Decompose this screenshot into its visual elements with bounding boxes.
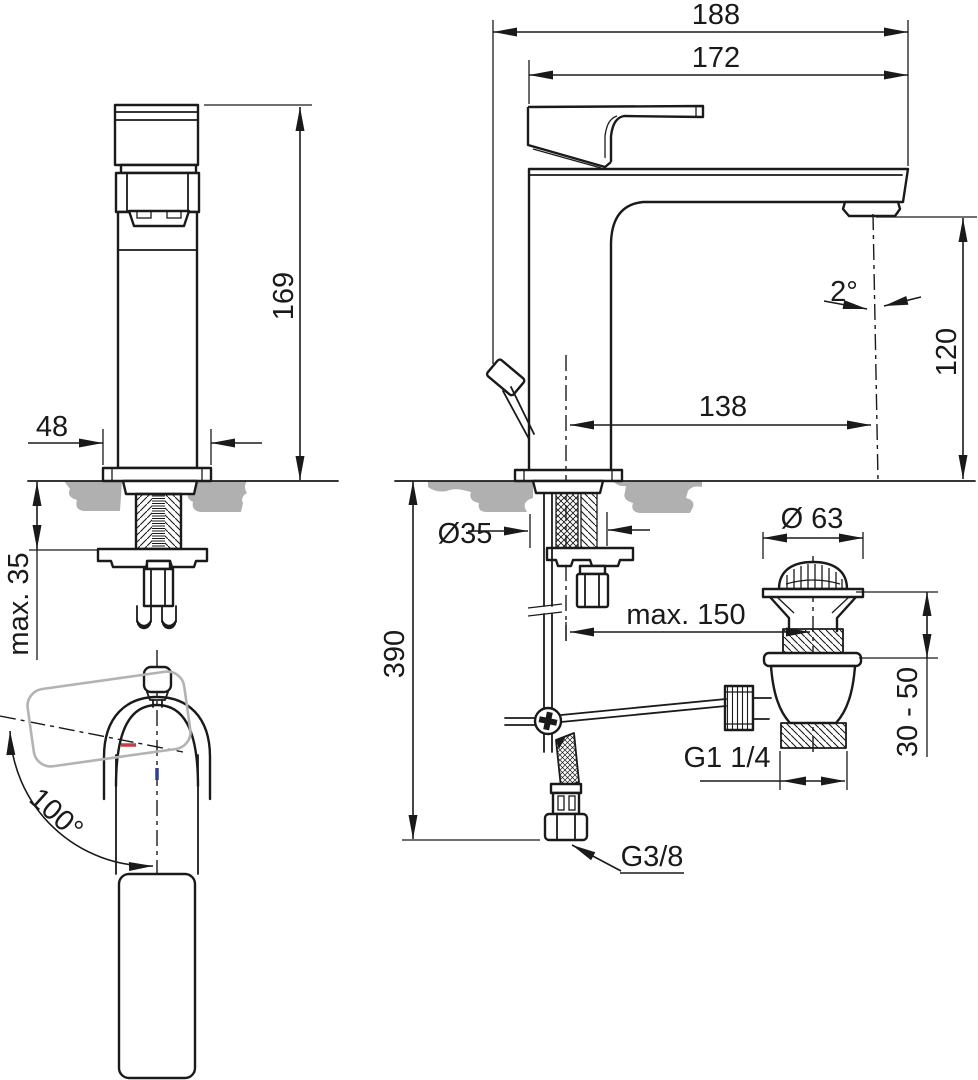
top-view: 100° xyxy=(0,650,210,1078)
waste-plug-cap xyxy=(779,562,847,589)
dim-clamp-range: 30 - 50 xyxy=(856,592,938,757)
dim-waste-thread-label: G1 1/4 xyxy=(683,742,770,774)
side-under-counter-mounting xyxy=(505,481,726,840)
dim-total-depth-label: 188 xyxy=(692,0,740,31)
hose-nut xyxy=(545,814,587,840)
dim-supply-thread-label: G3/8 xyxy=(621,841,684,873)
dim-plug-diameter: Ø 63 xyxy=(763,503,863,559)
pull-rod-joint xyxy=(505,699,726,734)
dim-clamp-range-label: 30 - 50 xyxy=(892,667,924,757)
pull-rod-knob xyxy=(486,358,534,439)
technical-drawing-page: 169 48 max. 35 xyxy=(0,0,978,1080)
dim-plug-diameter-label: Ø 63 xyxy=(781,503,844,535)
mounting-bracket xyxy=(547,548,633,566)
dim-swivel-angle: 100° xyxy=(10,731,153,866)
faucet-side-outline xyxy=(486,169,908,481)
centerline-swung xyxy=(0,716,183,752)
waste-assembly xyxy=(725,556,863,757)
dim-swivel-angle-label: 100° xyxy=(23,782,89,846)
supply-tails xyxy=(137,606,176,629)
dim-waste-thread: G1 1/4 xyxy=(683,742,847,790)
dim-spout-depth-label: 172 xyxy=(692,42,740,74)
dim-base-width-label: 48 xyxy=(36,411,68,443)
dim-stream-angle: 2° xyxy=(824,276,921,309)
dim-spout-reach: 138 xyxy=(570,391,871,425)
aerator xyxy=(843,202,900,216)
base-flange xyxy=(515,470,622,481)
counter-cross-section xyxy=(428,481,533,512)
faucet-dimensional-drawing: 169 48 max. 35 xyxy=(0,0,978,1080)
dim-stream-angle-label: 2° xyxy=(830,276,858,308)
dim-hole-diameter-label: Ø35 xyxy=(438,518,493,550)
dim-height: 169 xyxy=(204,105,312,480)
dim-spout-height-label: 120 xyxy=(931,328,963,376)
dim-spout-depth: 172 xyxy=(529,42,908,104)
dim-supply-thread: G3/8 xyxy=(572,841,684,873)
dim-hose-drop-label: 390 xyxy=(379,630,411,678)
lever-handle-side xyxy=(528,106,703,168)
counter-cross-section xyxy=(613,481,702,513)
dim-deck-thickness-label: max. 35 xyxy=(3,552,35,655)
stream-axis xyxy=(873,214,878,480)
dim-spout-reach-label: 138 xyxy=(699,391,747,423)
dim-height-label: 169 xyxy=(268,272,300,320)
dim-waste-offset-label: max. 150 xyxy=(626,599,745,631)
counter-cross-section xyxy=(64,481,122,511)
dim-spout-height: 120 xyxy=(876,217,977,479)
side-view: 188 172 120 138 2° Ø35 xyxy=(379,0,977,873)
faucet-front-outline xyxy=(103,105,211,481)
front-view: 169 48 max. 35 xyxy=(3,105,338,660)
